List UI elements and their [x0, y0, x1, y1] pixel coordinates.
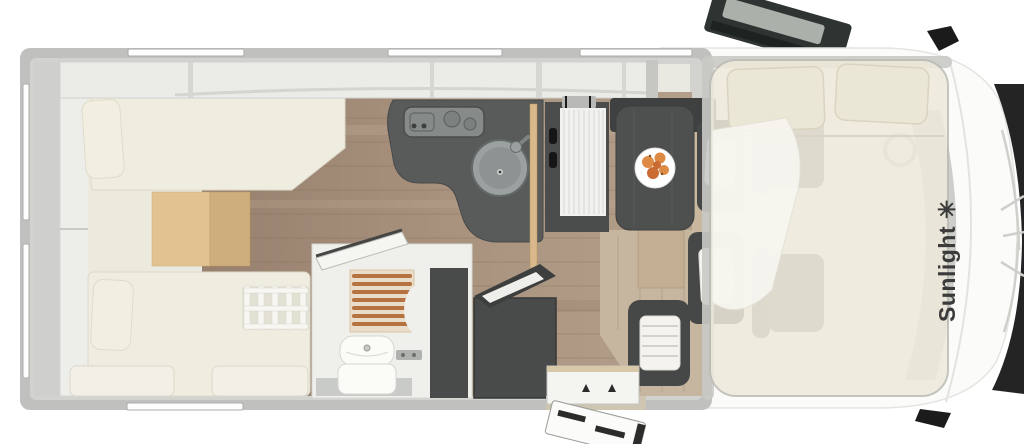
window-strip-top-3 — [580, 49, 692, 56]
fridge — [545, 96, 609, 232]
kitchen-partition — [530, 104, 537, 268]
brand-sunlight-label: Sunlight✳ — [934, 199, 960, 322]
rear-bed-bottom-pillow — [90, 279, 134, 351]
bed-cushion-2 — [212, 366, 308, 396]
cabinet-divider — [622, 62, 626, 98]
rear-bed-top-pillow — [81, 99, 124, 179]
rear-bed-top — [89, 94, 345, 190]
rear-garage-strip-2 — [23, 244, 29, 378]
side-mirror-bottom — [915, 409, 951, 428]
dropdown-bed-overlay — [702, 56, 952, 400]
floorplan-canvas: Sunlight✳ — [0, 0, 1024, 444]
cabinet-divider — [188, 62, 193, 98]
bunk-ladder — [242, 286, 310, 330]
motorhome-floorplan-image: Sunlight✳ — [0, 0, 1024, 444]
bed-pillow-right — [835, 64, 930, 125]
shower-grate — [350, 270, 414, 332]
table-pedestal — [638, 224, 684, 288]
bed-steps — [152, 192, 250, 266]
bathroom-wardrobe-panel — [430, 268, 468, 398]
rear-garage-strip-1 — [23, 84, 29, 220]
sun-logo-icon: ✳ — [934, 199, 960, 219]
cabinet-divider — [430, 62, 434, 98]
bathroom — [312, 230, 472, 398]
bed-cushion-1 — [70, 366, 174, 396]
stove — [404, 107, 484, 137]
dinette-table — [616, 106, 694, 230]
side-mirror-top — [927, 26, 959, 51]
fridge-handle-2 — [549, 152, 557, 168]
rear-cabinet-column — [34, 62, 60, 396]
window-strip-top-2 — [388, 49, 502, 56]
fridge-handle-1 — [549, 128, 557, 144]
dinette-plate — [635, 148, 675, 188]
cabinet-divider — [536, 62, 542, 98]
window-strip-bottom — [127, 403, 243, 410]
window-strip-top-1 — [128, 49, 244, 56]
